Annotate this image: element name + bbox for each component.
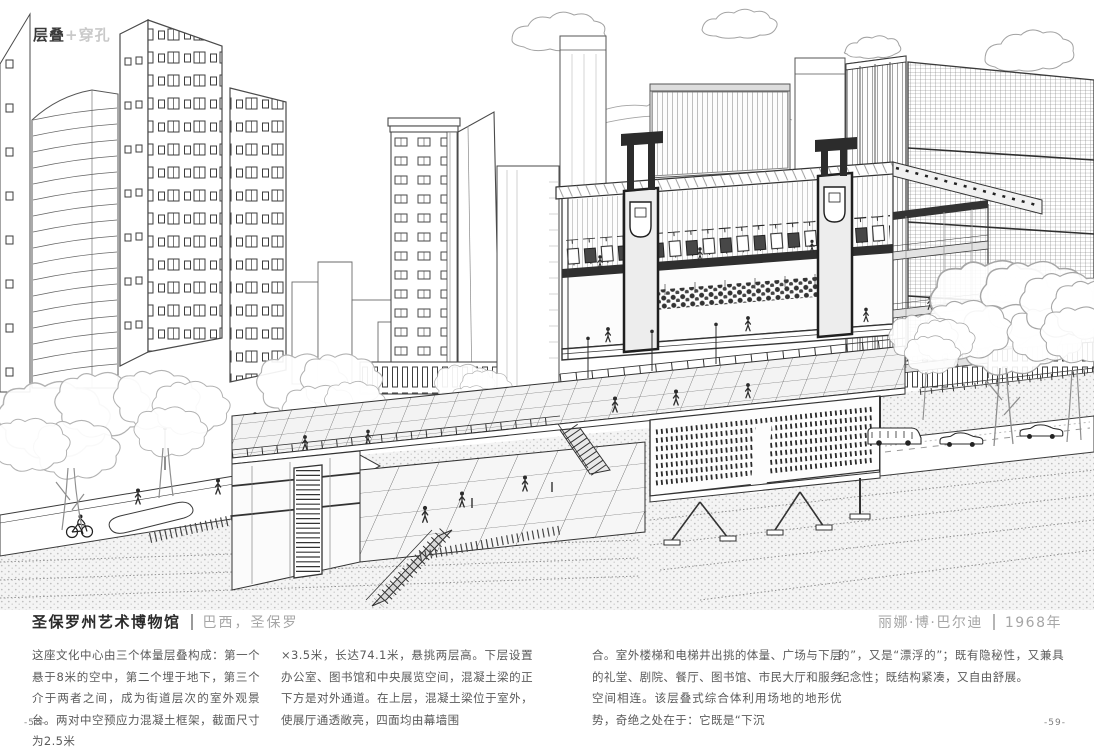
stair-shaft bbox=[294, 465, 322, 578]
cylindrical-tower bbox=[32, 90, 118, 388]
chapter-tag: 层叠+穿孔 bbox=[33, 24, 111, 45]
body-text-column-2: ×3.5米，长达74.1米，悬挑两层高。下层设置办公室、图书馆和中央展览空间，混… bbox=[281, 645, 533, 731]
project-location: 巴西，圣保罗 bbox=[203, 612, 299, 632]
chapter-tag-primary: 层叠 bbox=[33, 26, 65, 44]
caption-row: 圣保罗州艺术博物馆 巴西，圣保罗 丽娜·博·巴尔迪 1968年 bbox=[32, 611, 1062, 632]
page-number-left: -58- bbox=[24, 718, 46, 728]
edge-slab-building bbox=[0, 14, 30, 392]
chapter-tag-secondary: +穿孔 bbox=[65, 26, 111, 44]
project-year: 1968年 bbox=[1005, 612, 1062, 632]
page-number-right: -59- bbox=[1044, 718, 1066, 728]
sloped-parapet bbox=[458, 112, 500, 392]
body-text-column-3: 合。室外楼梯和电梯井出挑的体量、广场与下层的礼堂、剧院、餐厅、图书馆、市民大厅和… bbox=[592, 645, 842, 731]
architect-name: 丽娜·博·巴尔迪 bbox=[878, 612, 983, 632]
bus bbox=[868, 428, 921, 446]
apartment-tower-b bbox=[230, 88, 286, 382]
apartment-tower-a bbox=[120, 20, 222, 366]
project-title-block: 圣保罗州艺术博物馆 巴西，圣保罗 bbox=[32, 611, 299, 632]
architectural-section-illustration bbox=[0, 0, 1094, 610]
background-slab bbox=[497, 166, 559, 392]
concrete-pier bbox=[624, 188, 658, 352]
left-city-buildings bbox=[0, 14, 559, 394]
project-title: 圣保罗州艺术博物馆 bbox=[32, 611, 181, 632]
book-page: 层叠+穿孔 bbox=[0, 0, 1094, 750]
concrete-pier bbox=[818, 173, 852, 337]
body-text-column-4: 的”，又是“漂浮的”；既有隐秘性，又兼具纪念性；既结构紧凑，又自由舒展。 bbox=[838, 645, 1064, 688]
title-divider bbox=[191, 614, 193, 630]
credit-divider bbox=[993, 614, 995, 630]
body-text-column-1: 这座文化中心由三个体量层叠构成：第一个悬于8米的空中，第二个埋于地下，第三个介于… bbox=[32, 645, 260, 750]
credit-block: 丽娜·博·巴尔迪 1968年 bbox=[878, 612, 1062, 632]
